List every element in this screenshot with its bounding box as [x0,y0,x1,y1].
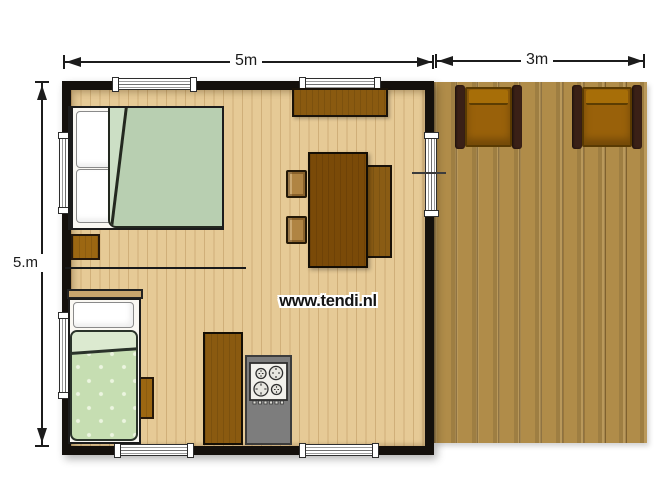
chair-armrest [512,85,522,149]
chair-armrest [455,85,465,149]
dimension-label-3m: 3m [521,51,553,69]
chair-armrest [572,85,582,149]
chair-armrest [632,85,642,149]
watermark: www.tendi.nl [270,292,386,311]
arrow-right-icon [417,57,432,67]
sideboard [292,88,388,117]
window-top-left [113,78,196,90]
chair-seat [465,87,512,147]
dimension-label-5m-depth: 5.m [8,254,43,272]
arrow-left-icon [438,56,453,66]
deck-chair [572,85,642,149]
deck [434,82,647,443]
window-bottom-right [300,444,378,456]
dining-table [308,152,368,268]
arrow-up-icon [37,85,47,100]
dimension-tick [435,54,437,68]
pillow [73,302,134,328]
entrance-door [425,133,437,216]
chair-seat [582,87,632,147]
arrow-down-icon [37,428,47,443]
arrow-left-icon [66,57,81,67]
arrow-right-icon [628,56,643,66]
dimension-tick [432,55,434,69]
duvet [108,106,224,228]
kitchen-counter [245,355,292,445]
partition-wall [65,267,246,269]
dimension-tick [35,445,49,447]
double-bed [68,106,224,230]
bench [365,165,392,258]
kitchen-cabinet [203,332,243,445]
dining-chair [286,216,307,244]
duvet-fold [108,106,128,228]
duvet [70,330,138,441]
dining-chair [286,170,307,198]
door-threshold-mark [412,172,446,174]
floor-plan: 5m 3m 5.m [0,0,667,500]
nightstand [71,234,100,260]
duvet-fold [70,330,138,355]
deck-chair [455,85,522,149]
window-bottom-left [115,444,193,456]
single-bed [68,298,141,444]
dimension-tick [63,55,65,69]
stove-icon [249,362,289,406]
dimension-tick [35,81,49,83]
cabin [62,81,434,455]
dimension-label-5m: 5m [230,52,262,70]
dimension-tick [643,54,645,68]
